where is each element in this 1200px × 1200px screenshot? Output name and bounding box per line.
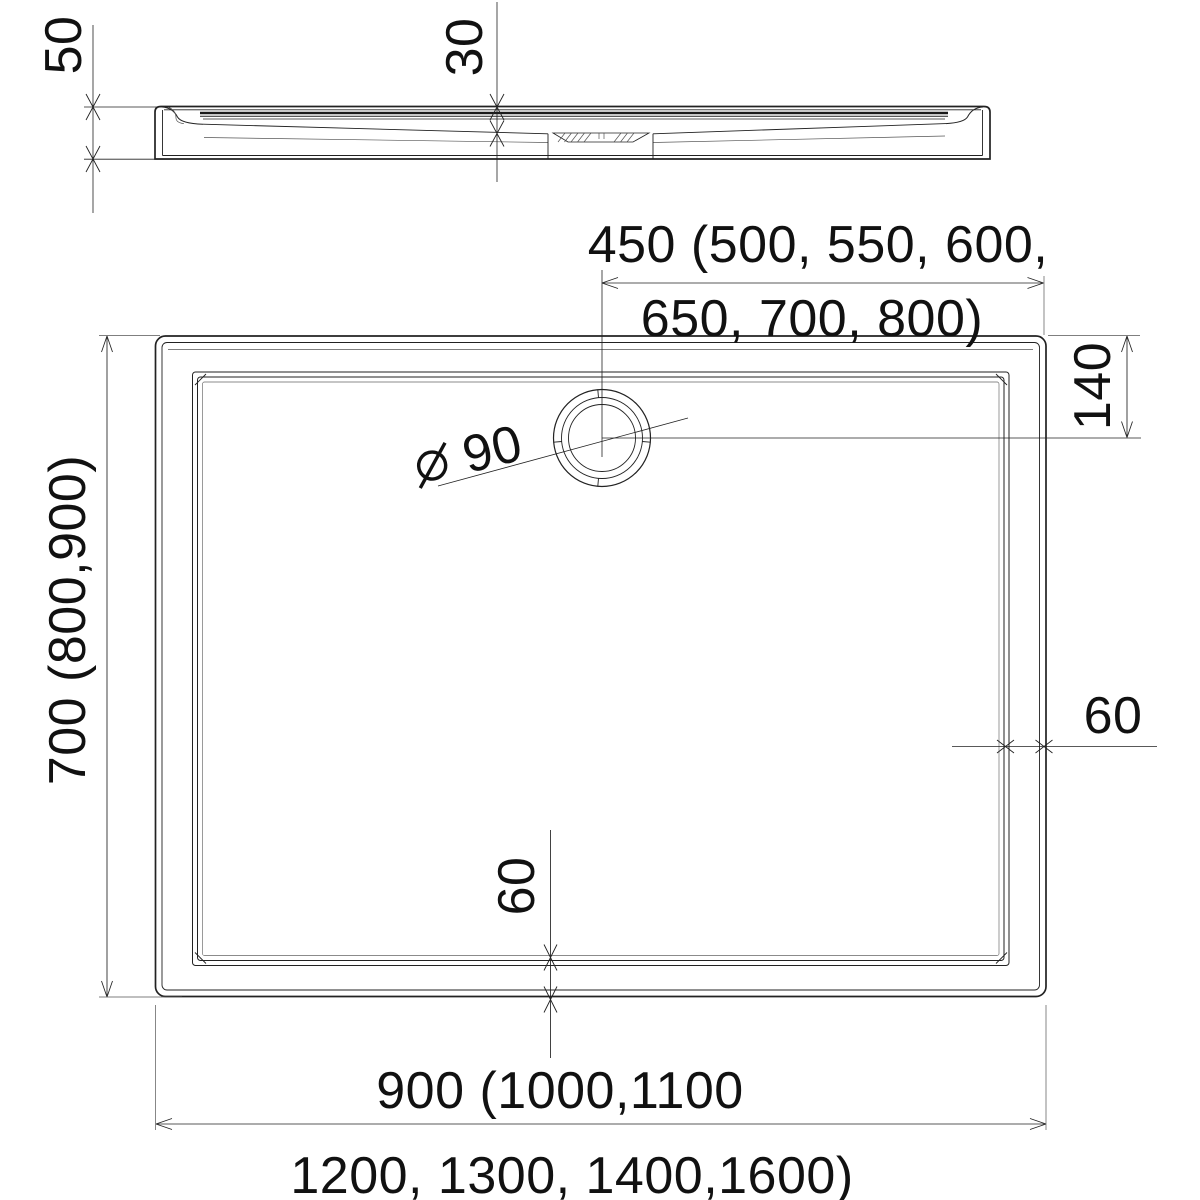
side-shell-left xyxy=(204,138,548,143)
side-drain-hatching xyxy=(558,133,634,142)
dim900-label-line1: 900 (1000,1100 xyxy=(376,1062,743,1120)
shower-tray-drawing: 50 30 90 xyxy=(0,0,1200,1200)
side-view: 50 30 xyxy=(35,2,990,213)
plan-rim-line-inner xyxy=(203,382,1000,956)
drain-diameter-label: 90 xyxy=(457,414,528,485)
dim700-label: 700 (800,900) xyxy=(39,455,97,785)
dim140-label: 140 xyxy=(1064,342,1122,430)
dimension-drain-offset-x: 450 (500, 550, 600, 650, 700, 800) xyxy=(588,216,1049,348)
dim50-label: 50 xyxy=(35,16,93,75)
plan-outer-edge xyxy=(156,336,1047,997)
dim450-label-line2: 650, 700, 800) xyxy=(641,290,983,348)
side-floor-right xyxy=(653,124,946,134)
dimension-side-height: 50 xyxy=(35,16,170,213)
dim30-label: 30 xyxy=(436,18,494,77)
dimension-rim-bottom: 60 xyxy=(488,830,557,1058)
drain-diameter-callout: 90 xyxy=(408,414,528,497)
side-drain-flange xyxy=(553,133,649,142)
plan-view: 90 450 (500, 550, 600, 650, 700, 800) 14… xyxy=(39,216,1157,1200)
dimension-tray-depth: 700 (800,900) xyxy=(39,336,182,998)
dim700-extensions xyxy=(99,336,182,998)
dim900-label-line2: 1200, 1300, 1400,1600) xyxy=(290,1147,853,1200)
side-shell-right xyxy=(653,136,945,143)
dimension-rim-right: 60 xyxy=(952,687,1157,753)
dimension-tray-width: 900 (1000,1100 1200, 1300, 1400,1600) xyxy=(156,1005,1047,1200)
plan-rim-line-outer xyxy=(193,372,1010,966)
dimension-side-depth: 30 xyxy=(436,2,504,182)
drawing-canvas: 50 30 90 xyxy=(0,0,1200,1200)
plan-rim-corner-chamfers xyxy=(195,374,1007,964)
dimension-drain-offset-y: 140 xyxy=(1048,336,1140,438)
plan-outer-edge-inner-line xyxy=(162,343,1040,991)
dim450-label-line1: 450 (500, 550, 600, xyxy=(588,216,1049,274)
dim60b-label: 60 xyxy=(488,857,546,916)
dim60r-label: 60 xyxy=(1084,687,1143,745)
plan-rim-line-middle xyxy=(198,377,1005,961)
